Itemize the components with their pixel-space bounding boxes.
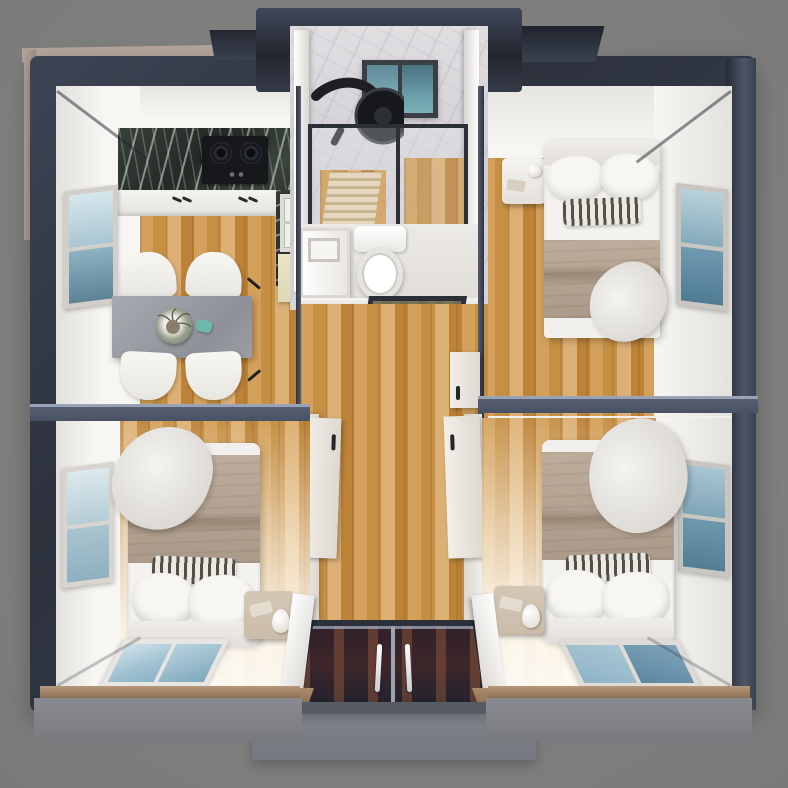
entry-door-mullion (391, 626, 395, 712)
bedroom-bl-window-pane-top (67, 467, 109, 527)
toilet-bowl (357, 248, 403, 300)
entry-door-handle-right (405, 644, 413, 692)
hall-door-right-upper (450, 352, 480, 408)
divider-wall-right-wing (478, 396, 758, 413)
hall-door-right-handle (450, 434, 455, 450)
bedroom-br-window-pane-bottom (683, 515, 725, 571)
entrance (240, 580, 550, 788)
plant-sprigs (156, 308, 192, 344)
hall-door-left-handle (331, 434, 336, 450)
bed-top-right (544, 140, 660, 338)
plant-centerpiece (156, 308, 192, 344)
bottom-apron-left (34, 698, 302, 742)
bottom-apron-right (486, 698, 752, 742)
entry-glass-double-door (300, 626, 486, 712)
entry-door-handle-left (375, 644, 383, 692)
divider-wall-left-wing (30, 404, 310, 421)
bedroom-tr-window-pane-top (681, 188, 723, 249)
kitchen-window-pane-top (69, 190, 113, 249)
shower-right-floor (404, 158, 464, 228)
bedroom-tr-window (676, 183, 728, 311)
bedroom-tr-window-pane-bottom (681, 244, 723, 305)
shower-enclosure (308, 124, 468, 232)
shower-glass-mullion (396, 128, 400, 228)
bedroom-bl-window (62, 462, 114, 588)
bathroom-vanity (300, 228, 350, 298)
bathroom-window-pane-right (400, 65, 433, 113)
bed-bottom-right (542, 440, 674, 640)
cooktop-knobs (228, 172, 246, 177)
floorplan-render (0, 0, 788, 788)
bedroom-br-bottom-window (558, 640, 701, 688)
kitchen-window-pane-bottom (69, 244, 113, 303)
shower-slat-mat (322, 172, 382, 226)
bedroom-br-window-pane-top (683, 464, 725, 520)
cooktop-burner-left (210, 142, 232, 164)
vanity-basin (308, 238, 340, 262)
bedroom-bl-window-pane-bottom (67, 522, 109, 582)
kitchen-window (64, 185, 118, 310)
bedroom-tr-cup (528, 164, 541, 177)
hall-door-right-upper-handle (456, 386, 460, 400)
bed-tr-striped-pillow (563, 197, 642, 227)
